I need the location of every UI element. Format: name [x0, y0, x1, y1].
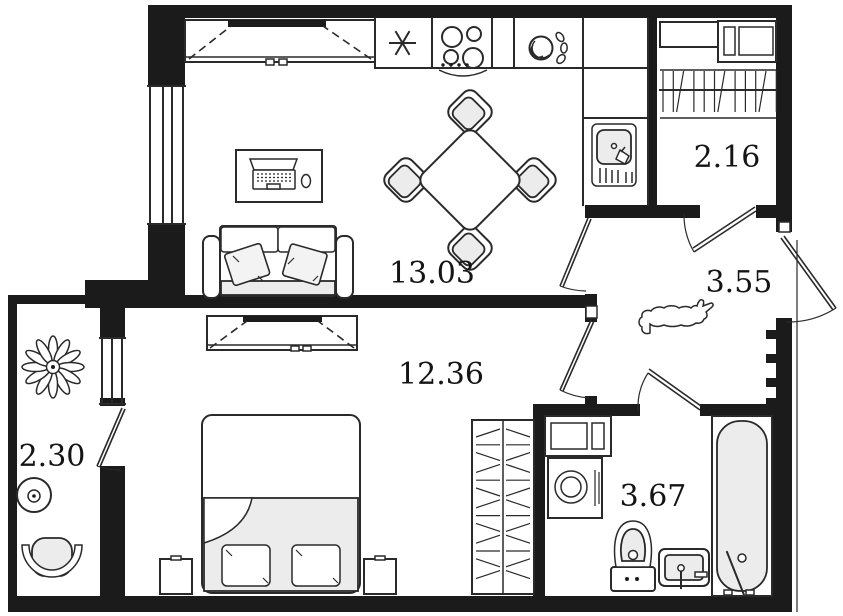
dining-table: [381, 87, 560, 274]
door-bathroom: [638, 369, 701, 410]
pipe-clip: [766, 398, 776, 407]
bed: [202, 415, 360, 593]
hatched-wardrobe: [472, 420, 534, 594]
label-bedroom: 12.36: [398, 357, 484, 392]
floor-plan: 13.03 12.36 2.16 3.55 3.67 2.30: [0, 0, 843, 616]
washing-machine: [548, 458, 602, 518]
fridge-icon: [390, 32, 415, 54]
plant-icon: [22, 336, 84, 398]
nightstand: [364, 556, 396, 594]
living-room-window: [148, 86, 185, 224]
cat-icon: [639, 300, 713, 334]
door-balcony: [97, 408, 125, 470]
pillow: [292, 545, 340, 586]
balcony-table: [17, 478, 51, 512]
label-balcony: 2.30: [19, 439, 86, 474]
sliding-wardrobe-living: [185, 20, 375, 65]
toilet: [611, 521, 655, 591]
closet-shelves: [660, 21, 776, 62]
sliding-wardrobe-bedroom: [207, 316, 357, 351]
label-hallway: 3.55: [706, 265, 773, 300]
entrance-door: [779, 222, 836, 322]
floor-plan-page: 13.03 12.36 2.16 3.55 3.67 2.30: [0, 0, 843, 616]
hatch-line: [677, 71, 684, 112]
pipe-clip: [766, 354, 776, 363]
label-kitchen-living: 13.03: [389, 256, 475, 291]
pipe-clip: [766, 378, 776, 387]
label-closet: 2.16: [694, 140, 761, 175]
balcony-window: [100, 338, 125, 404]
door-living-to-hallway: [560, 218, 591, 291]
desk-laptop: [236, 150, 322, 202]
pipe-clip: [766, 330, 776, 339]
dish-rack-icon: [530, 31, 568, 65]
kitchen-sink-icon: [592, 124, 636, 186]
bathtub: [712, 416, 772, 596]
mouse-icon: [302, 175, 311, 188]
hanging-rail: [660, 70, 776, 118]
pillow: [222, 545, 270, 586]
wall-cabinet: [545, 416, 611, 456]
sofa: [203, 226, 353, 298]
hatch-line: [759, 71, 766, 112]
balcony-chair: [22, 538, 82, 577]
washbasin: [659, 549, 709, 588]
nightstand: [160, 556, 192, 594]
label-bathroom: 3.67: [620, 479, 687, 514]
hatch-line: [718, 71, 725, 112]
